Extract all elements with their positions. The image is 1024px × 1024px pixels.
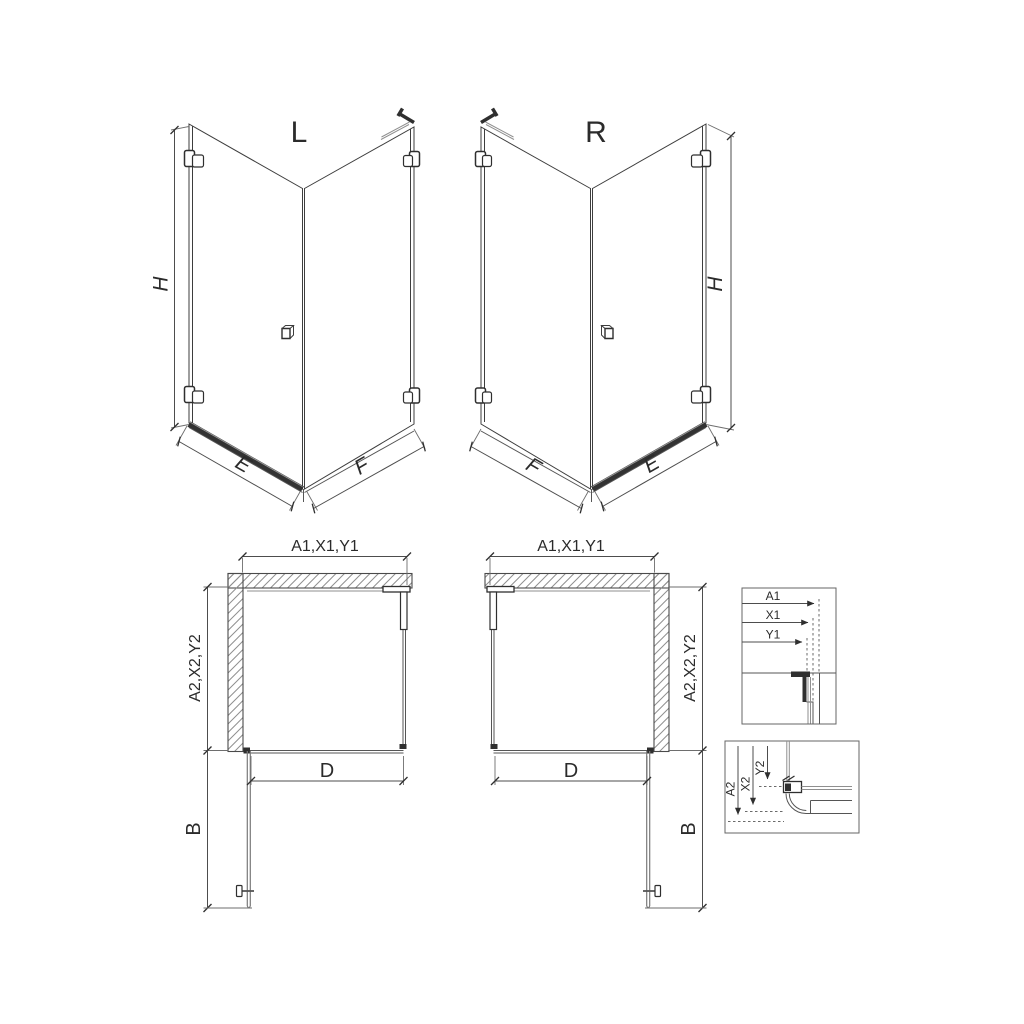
dim-label-E: E — [640, 450, 664, 477]
dimension-side-width-right: F — [470, 429, 589, 513]
dimension-door-projection-right-plan: B — [645, 751, 707, 913]
reference-lines — [807, 599, 819, 701]
dim-label-A1X1Y1: A1,X1,Y1 — [291, 538, 359, 555]
detail-view-wall-profile: A1 X1 Y1 — [742, 588, 836, 724]
dim-label-D: D — [320, 760, 334, 782]
plan-drawing-left — [237, 587, 411, 908]
dimension-door-opening-right-plan: D — [491, 756, 651, 785]
plan-view-left: A1,X1,Y1 A2,X2,Y2 B D — [183, 538, 412, 912]
dim-label-A1X1Y1: A1,X1,Y1 — [537, 538, 605, 555]
detail-frame — [742, 588, 836, 724]
dim-label-D: D — [564, 760, 578, 782]
dim-label-H: H — [704, 276, 727, 292]
wall-top-right-plan — [485, 574, 669, 589]
dim-label-X2: X2 — [739, 776, 753, 791]
perspective-view-right: R H F E — [470, 109, 735, 514]
dim-label-E: E — [231, 451, 255, 478]
dimension-depth-left-plan: A2,X2,Y2 — [187, 583, 228, 755]
dim-label-A2X2Y2: A2,X2,Y2 — [682, 634, 699, 702]
dim-label-Y2: Y2 — [753, 760, 767, 775]
detail-view-floor-profile: A2 X2 Y2 — [724, 741, 860, 833]
dimension-door-opening-left-plan: D — [247, 756, 408, 785]
wall-profile-section — [742, 672, 836, 724]
enclosure-drawing-right — [476, 109, 711, 503]
dim-label-X1: X1 — [766, 608, 781, 622]
dim-label-F: F — [522, 453, 546, 480]
dimension-height-left: H — [150, 126, 190, 431]
view-title-left: L — [291, 116, 308, 149]
shower-enclosure-technical-drawing: L H E F R H — [0, 0, 1024, 1024]
dim-label-Y1: Y1 — [766, 628, 781, 642]
dim-label-A2X2Y2: A2,X2,Y2 — [187, 634, 204, 702]
dimension-door-width-left: E — [176, 426, 301, 511]
wall-side-left-plan — [228, 574, 243, 752]
plan-drawing-right — [487, 587, 661, 908]
dim-label-H: H — [150, 276, 173, 292]
floor-profile-section — [783, 741, 853, 814]
dimension-depth-right-plan: A2,X2,Y2 — [669, 583, 707, 755]
dim-label-B: B — [678, 822, 700, 835]
view-title-right: R — [585, 116, 607, 149]
plan-view-right: A1,X1,Y1 A2,X2,Y2 B D — [485, 538, 707, 912]
perspective-view-left: L H E F — [150, 109, 426, 514]
dimension-door-width-right: E — [595, 426, 720, 511]
dim-label-A2: A2 — [724, 781, 738, 796]
dim-label-A1: A1 — [766, 589, 781, 603]
wall-side-right-plan — [654, 574, 669, 752]
enclosure-drawing-left — [185, 109, 420, 503]
dim-label-B: B — [183, 822, 205, 835]
dim-label-F: F — [350, 453, 374, 480]
wall-top-left-plan — [228, 574, 412, 589]
dimension-side-width-left: F — [307, 429, 426, 513]
